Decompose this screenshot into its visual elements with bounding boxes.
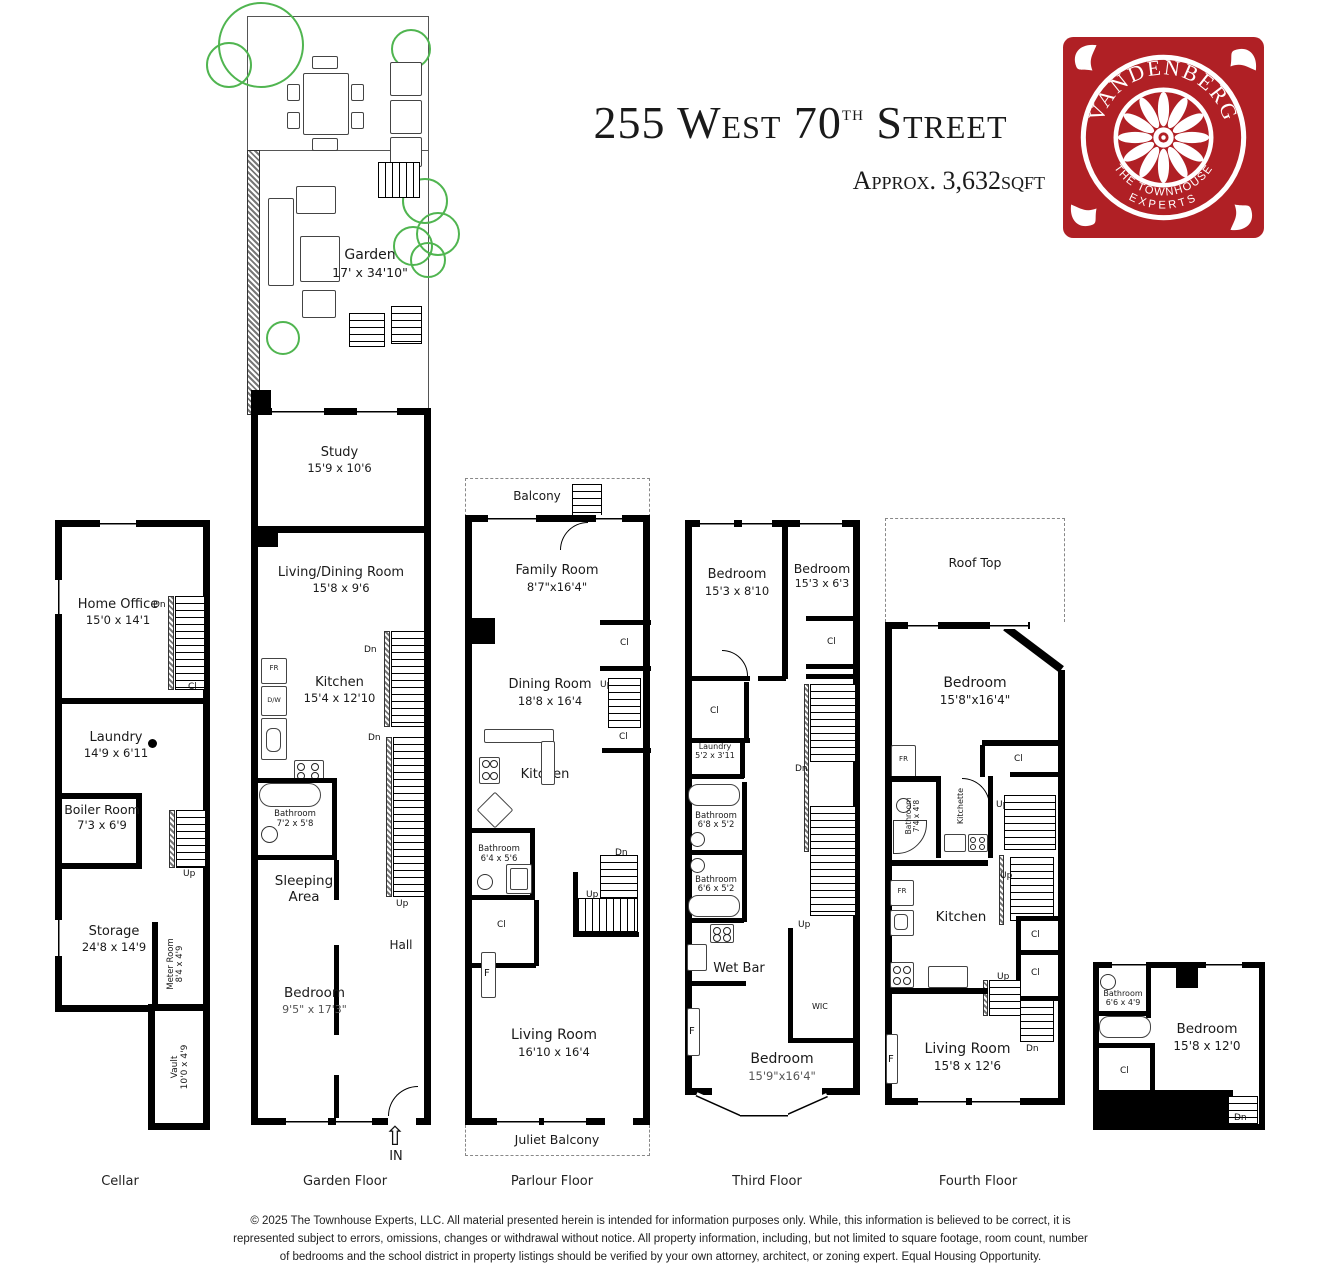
stairs-up-label: Up <box>798 920 810 930</box>
room-name: Bedroom <box>262 986 367 1001</box>
stairs-down-label: Dn <box>364 645 377 655</box>
garden-chair <box>312 56 338 69</box>
stairs <box>391 631 425 727</box>
room-name: Bedroom <box>723 1052 841 1067</box>
wall <box>788 928 793 1043</box>
wall <box>688 850 744 855</box>
stairs <box>810 806 856 916</box>
garden-ottoman <box>302 290 336 318</box>
closet-label: Cl <box>497 920 506 930</box>
kitchen-counter <box>541 741 555 785</box>
wall <box>1150 1046 1155 1090</box>
wall <box>690 676 750 681</box>
wall <box>988 776 993 858</box>
room-dims: 7'3 x 6'9 <box>58 819 146 832</box>
stair-rail <box>169 810 175 868</box>
hall-label: Hall <box>372 939 430 952</box>
room-dims: 8'7"x16'4" <box>492 581 622 594</box>
title-street: Street <box>864 97 1008 148</box>
room-name: Bedroom <box>788 562 856 576</box>
room-dims: 15'8"x16'4" <box>915 694 1035 707</box>
wall <box>258 526 424 533</box>
garden-stairs <box>349 313 385 347</box>
window <box>357 408 397 415</box>
wall <box>782 527 788 679</box>
window <box>1206 962 1242 968</box>
wall <box>744 682 749 740</box>
toilet <box>690 858 705 873</box>
wall <box>258 533 278 547</box>
bathtub <box>1099 1016 1151 1038</box>
window <box>497 1118 539 1125</box>
room-name: Living Room <box>488 1028 620 1043</box>
toilet <box>1100 974 1116 990</box>
wall <box>251 390 271 408</box>
window <box>990 622 1028 629</box>
garden-chair <box>312 138 338 151</box>
wall <box>936 776 941 858</box>
kitchette-stove <box>968 834 988 852</box>
wall <box>1099 1043 1155 1048</box>
window <box>336 1118 372 1125</box>
roof-top-label: Roof Top <box>920 556 1030 570</box>
bathtub <box>259 783 321 807</box>
window <box>700 520 734 527</box>
vault-label: Vault10'0 x 4'9 <box>171 1024 195 1110</box>
wall <box>788 1038 860 1043</box>
window <box>800 520 842 527</box>
wall <box>1010 772 1060 777</box>
room-dims: 15'8 x 12'6 <box>905 1060 1030 1073</box>
sink-basin <box>266 728 281 752</box>
stairs <box>176 810 206 868</box>
wall <box>1016 950 1058 955</box>
title-ordinal: th <box>842 100 864 125</box>
wall <box>600 620 651 625</box>
sink-basin <box>894 914 908 930</box>
garden-chair <box>351 84 364 101</box>
wall <box>602 748 651 753</box>
window <box>286 1118 328 1125</box>
room-name: Living/Dining Room <box>277 566 405 580</box>
bay-window <box>695 1092 745 1120</box>
wall <box>806 674 854 679</box>
vandenberg-logo: VANDENBERG THE TOWNHOUSE EXPERTS <box>1062 36 1265 239</box>
room-dims: 24'8 x 14'9 <box>64 941 164 954</box>
wall <box>600 666 651 671</box>
window <box>596 515 622 522</box>
room-dims: 15'3 x 8'10 <box>695 585 779 598</box>
bathroom-label: Bathroom7'4 x 4'8 <box>905 779 925 853</box>
meter-room-label: Meter Room8'4 x 4'9 <box>167 921 191 1007</box>
page-title: 255 West 70th Street <box>548 96 1053 149</box>
closet-label: Cl <box>619 732 628 742</box>
room-dims: 9'5" x 17'3" <box>262 1004 367 1016</box>
wall <box>690 774 744 779</box>
room-dims: 18'8 x 16'4 <box>484 695 616 708</box>
window <box>908 622 938 629</box>
window <box>972 1098 1020 1105</box>
wall <box>806 664 854 669</box>
fridge-label: FR <box>261 665 287 673</box>
stairs-up-label: Up <box>183 869 195 879</box>
disclaimer: © 2025 The Townhouse Experts, LLC. All m… <box>0 1213 1321 1266</box>
roof-top-outline <box>885 518 1065 622</box>
toilet <box>690 832 705 847</box>
room-dims: 16'10 x 16'4 <box>488 1046 620 1059</box>
disclaimer-line1: © 2025 The Townhouse Experts, LLC. All m… <box>0 1213 1321 1231</box>
stairs <box>989 980 1021 1016</box>
kitchette-sink <box>944 834 966 852</box>
stairs <box>175 596 205 690</box>
closet-label: Cl <box>1031 930 1040 940</box>
room-dims: 6'8 x 5'2 <box>688 821 744 830</box>
fireplace-label: F <box>484 968 490 979</box>
wall <box>256 855 336 860</box>
floor-label-cellar: Cellar <box>70 1174 170 1189</box>
stairs-up-label: Up <box>997 972 1009 982</box>
title-number: 255 West 70 <box>593 97 841 148</box>
wet-bar-label: Wet Bar <box>700 962 778 976</box>
room-dims: 15'4 x 12'10 <box>287 692 392 705</box>
garden-lounge-chair <box>390 62 422 96</box>
room-name: Bathroom <box>468 845 530 854</box>
floor-label-fourth: Fourth Floor <box>917 1174 1039 1189</box>
room-name: Kitchen <box>916 910 1006 925</box>
stairs <box>810 684 856 762</box>
floorplan-page: 255 West 70th Street Approx. 3,632sqft V… <box>0 0 1321 1275</box>
wall <box>472 895 534 900</box>
window <box>100 520 136 527</box>
closet-label: Cl <box>188 682 197 692</box>
room-name: Boiler Room <box>58 803 146 817</box>
wall <box>58 793 142 799</box>
garden-room-dims: 17' x 34'10" <box>305 266 435 280</box>
window <box>544 1118 586 1125</box>
room-dims: 15'8 x 9'6 <box>277 582 405 595</box>
floor-label-third: Third Floor <box>707 1174 827 1189</box>
disclaimer-line3: of bedrooms and the school district in p… <box>0 1249 1321 1267</box>
wall <box>888 988 988 994</box>
window <box>918 1098 966 1105</box>
stairs-down-label: Dn <box>368 733 381 743</box>
closet-label: Cl <box>620 638 629 648</box>
fireplace-label: F <box>888 1054 894 1065</box>
tree-icon <box>266 321 300 355</box>
stairs-down-label: Dn <box>795 764 808 774</box>
stove <box>479 757 500 784</box>
wall <box>332 778 337 860</box>
stairs-down-label: Dn <box>1234 1113 1247 1123</box>
room-name: Bedroom <box>1162 1022 1252 1037</box>
garden-stairs <box>391 306 422 344</box>
floor-label-garden: Garden Floor <box>285 1174 405 1189</box>
bay-gap <box>712 1088 822 1095</box>
garden-armchair <box>296 186 336 214</box>
fridge-label: FR <box>890 888 914 896</box>
garden-hatched-wall <box>247 150 260 415</box>
room-name: Bedroom <box>695 568 779 582</box>
room-dims: 6'6 x 4'9 <box>1096 999 1150 1008</box>
room-dims: 14'9 x 6'11 <box>66 747 166 760</box>
wall <box>573 932 639 937</box>
tree-icon <box>206 42 252 88</box>
juliet-balcony-label: Juliet Balcony <box>497 1133 617 1147</box>
stairs-up-label: Up <box>396 899 408 909</box>
room-name: Storage <box>64 925 164 939</box>
garden-lounge-chair <box>390 100 422 134</box>
room-name: Bedroom <box>915 676 1035 691</box>
wall <box>980 745 985 777</box>
walk-in-closet-label: WIC <box>812 1002 828 1011</box>
wall <box>472 828 534 833</box>
room-dims: 15'9"x16'4" <box>723 1070 841 1083</box>
disclaimer-line2: represented subject to errors, omissions… <box>0 1231 1321 1249</box>
wall <box>806 616 854 621</box>
window <box>55 580 62 614</box>
room-name: Home Office <box>68 598 168 612</box>
window <box>488 515 536 522</box>
closet-label: Cl <box>1014 754 1023 764</box>
room-name: Study <box>277 446 402 460</box>
garden-stairs <box>378 162 420 198</box>
garden-chair <box>287 112 300 129</box>
wall <box>334 860 339 900</box>
wall <box>58 863 142 869</box>
room-name: Kitchen <box>287 676 392 690</box>
stair-rail <box>983 980 988 1016</box>
garden-sofa <box>268 198 294 286</box>
garden-chair <box>287 84 300 101</box>
drain-dot <box>148 739 157 748</box>
kitchette-label: Kitchette <box>957 773 969 839</box>
balcony-label: Balcony <box>497 490 577 503</box>
bathtub <box>688 895 740 917</box>
wall <box>465 618 495 644</box>
window <box>742 520 772 527</box>
stairs <box>600 855 638 901</box>
wall <box>62 698 205 704</box>
wall <box>888 860 988 866</box>
window <box>272 408 324 415</box>
wall <box>740 742 745 778</box>
stairs <box>578 898 638 932</box>
bay-window <box>740 1112 788 1119</box>
wall <box>982 740 1058 746</box>
room-name: Family Room <box>492 564 622 578</box>
garden-room-label: Garden <box>305 248 435 263</box>
wall-mass <box>1093 1090 1233 1130</box>
room-name: Living Room <box>905 1042 1030 1057</box>
stairs <box>393 737 425 897</box>
closet-label: Cl <box>710 706 719 716</box>
entry-arrow-icon: ⇧ <box>384 1122 406 1152</box>
room-dims: 5'2 x 3'11 <box>688 752 742 761</box>
closet-label: Cl <box>1031 968 1040 978</box>
stairs <box>1010 857 1054 921</box>
stair-rail <box>168 596 174 690</box>
room-dims: 7'2 x 5'8 <box>262 820 328 829</box>
stairs <box>1020 1000 1054 1042</box>
approx-sqft: Approx. 3,632sqft <box>548 166 1045 196</box>
closet-label: Cl <box>827 637 836 647</box>
wall <box>534 900 539 966</box>
stair-rail <box>386 737 392 897</box>
window <box>1112 962 1146 968</box>
room-dims: 15'8 x 12'0 <box>1162 1040 1252 1053</box>
floor-label-parlour: Parlour Floor <box>492 1174 612 1189</box>
wall <box>758 676 786 681</box>
stove <box>890 962 914 988</box>
wall <box>742 782 747 922</box>
garden-dining-table <box>303 73 349 135</box>
garden-chair <box>351 112 364 129</box>
room-dims: 6'4 x 5'6 <box>468 855 530 864</box>
room-dims: 15'0 x 14'1 <box>68 614 168 627</box>
room-dims: 15'3 x 6'3 <box>788 578 856 590</box>
wall <box>1176 962 1198 988</box>
fridge-label: FR <box>891 756 916 764</box>
closet-label: Cl <box>1120 1066 1129 1076</box>
dishwasher-label: D/W <box>261 697 287 704</box>
fireplace-label: F <box>689 1026 695 1037</box>
bathtub <box>688 784 740 806</box>
entry-label: IN <box>382 1150 410 1164</box>
kitchen-island <box>928 966 968 988</box>
room-name: Dining Room <box>484 678 616 692</box>
door-gap <box>605 1118 633 1125</box>
window <box>55 920 62 956</box>
shower-basin <box>510 868 528 890</box>
stove <box>710 924 734 943</box>
stairs-up-label: Up <box>1000 871 1012 881</box>
stairs <box>572 484 602 517</box>
stairs <box>1004 795 1056 850</box>
room-dims: 15'9 x 10'6 <box>277 462 402 475</box>
room-name: Bathroom <box>262 810 328 819</box>
stair-rail <box>384 631 390 727</box>
wall <box>1016 916 1058 921</box>
wall <box>688 918 744 923</box>
wall <box>688 981 746 986</box>
toilet <box>477 874 493 890</box>
room-dims: 6'6 x 5'2 <box>688 885 744 894</box>
